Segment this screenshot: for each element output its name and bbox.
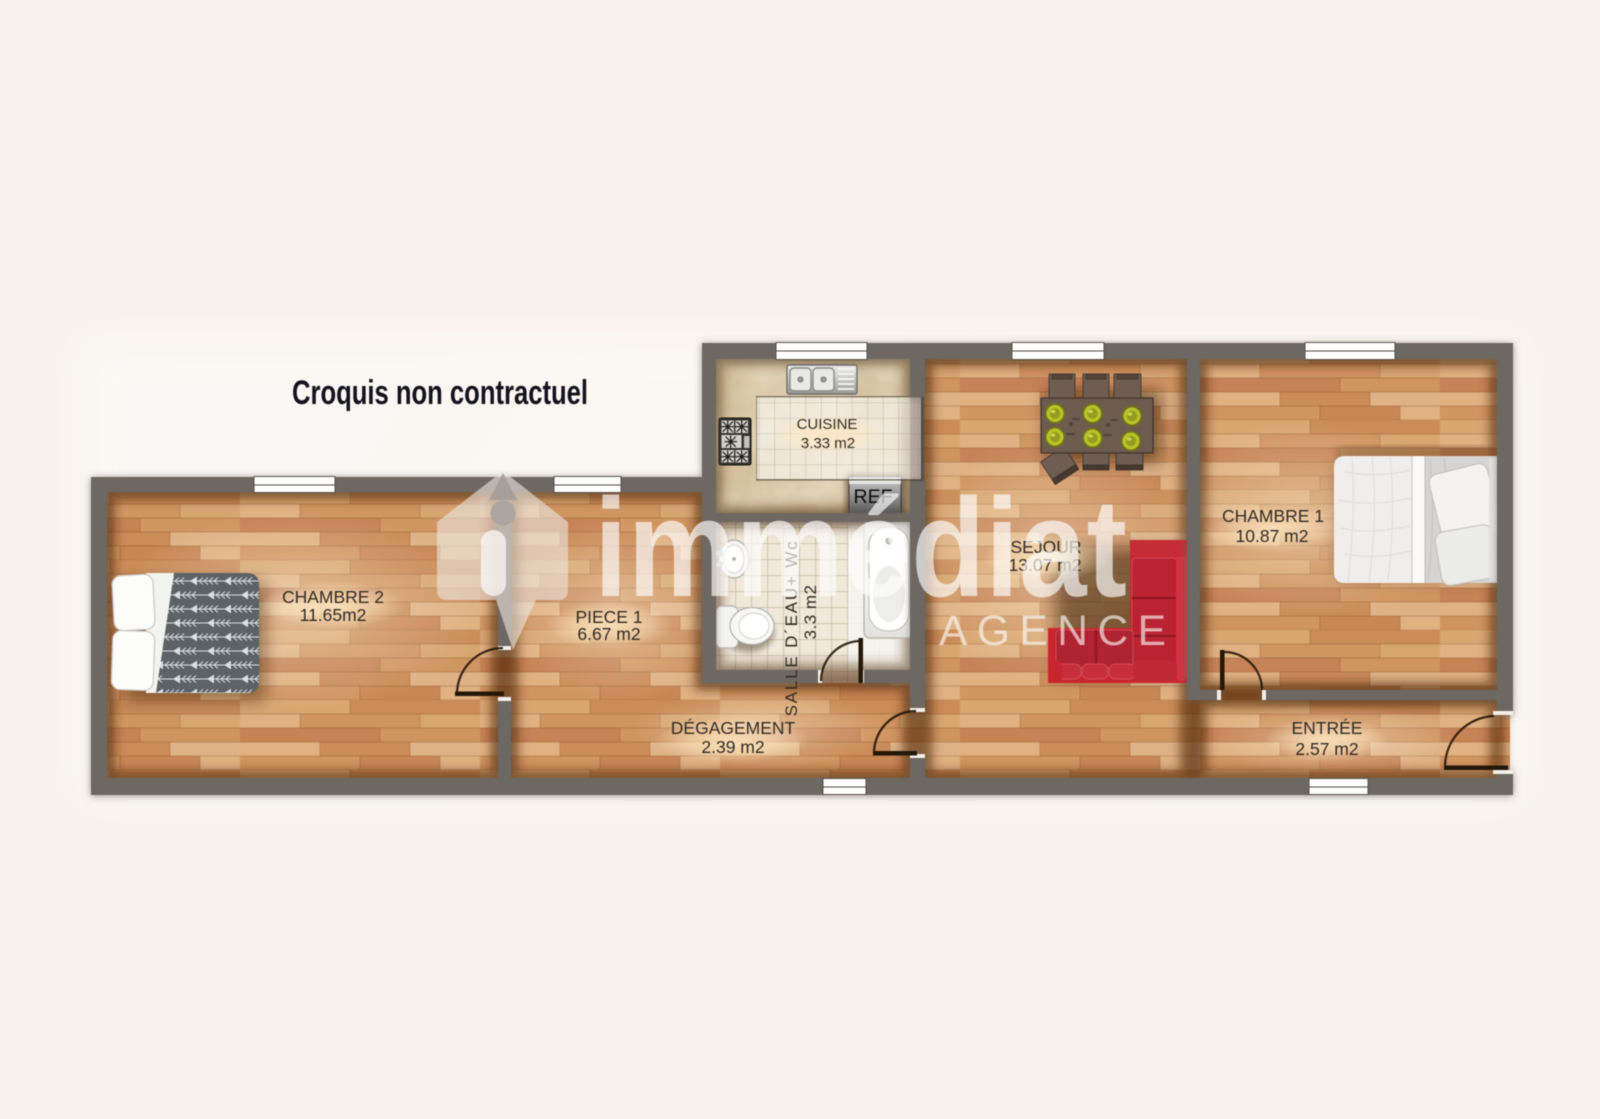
svg-text:immédiat: immédiat — [594, 469, 1127, 626]
svg-text:CHAMBRE 2: CHAMBRE 2 — [282, 587, 384, 607]
svg-text:3.33 m2: 3.33 m2 — [801, 435, 855, 452]
svg-text:11.65m2: 11.65m2 — [300, 605, 367, 625]
svg-text:ENTRÉE: ENTRÉE — [1292, 718, 1363, 738]
svg-text:2.39 m2: 2.39 m2 — [701, 737, 764, 757]
svg-text:CHAMBRE 1: CHAMBRE 1 — [1222, 506, 1324, 526]
svg-text:Croquis non contractuel: Croquis non contractuel — [292, 374, 588, 412]
svg-text:CUISINE: CUISINE — [797, 416, 858, 433]
svg-text:10.87 m2: 10.87 m2 — [1236, 526, 1309, 546]
svg-text:2.57 m2: 2.57 m2 — [1295, 739, 1358, 759]
svg-text:AGENCE: AGENCE — [939, 608, 1175, 655]
svg-text:DÉGAGEMENT: DÉGAGEMENT — [671, 718, 796, 738]
svg-text:6.67 m2: 6.67 m2 — [577, 624, 640, 644]
